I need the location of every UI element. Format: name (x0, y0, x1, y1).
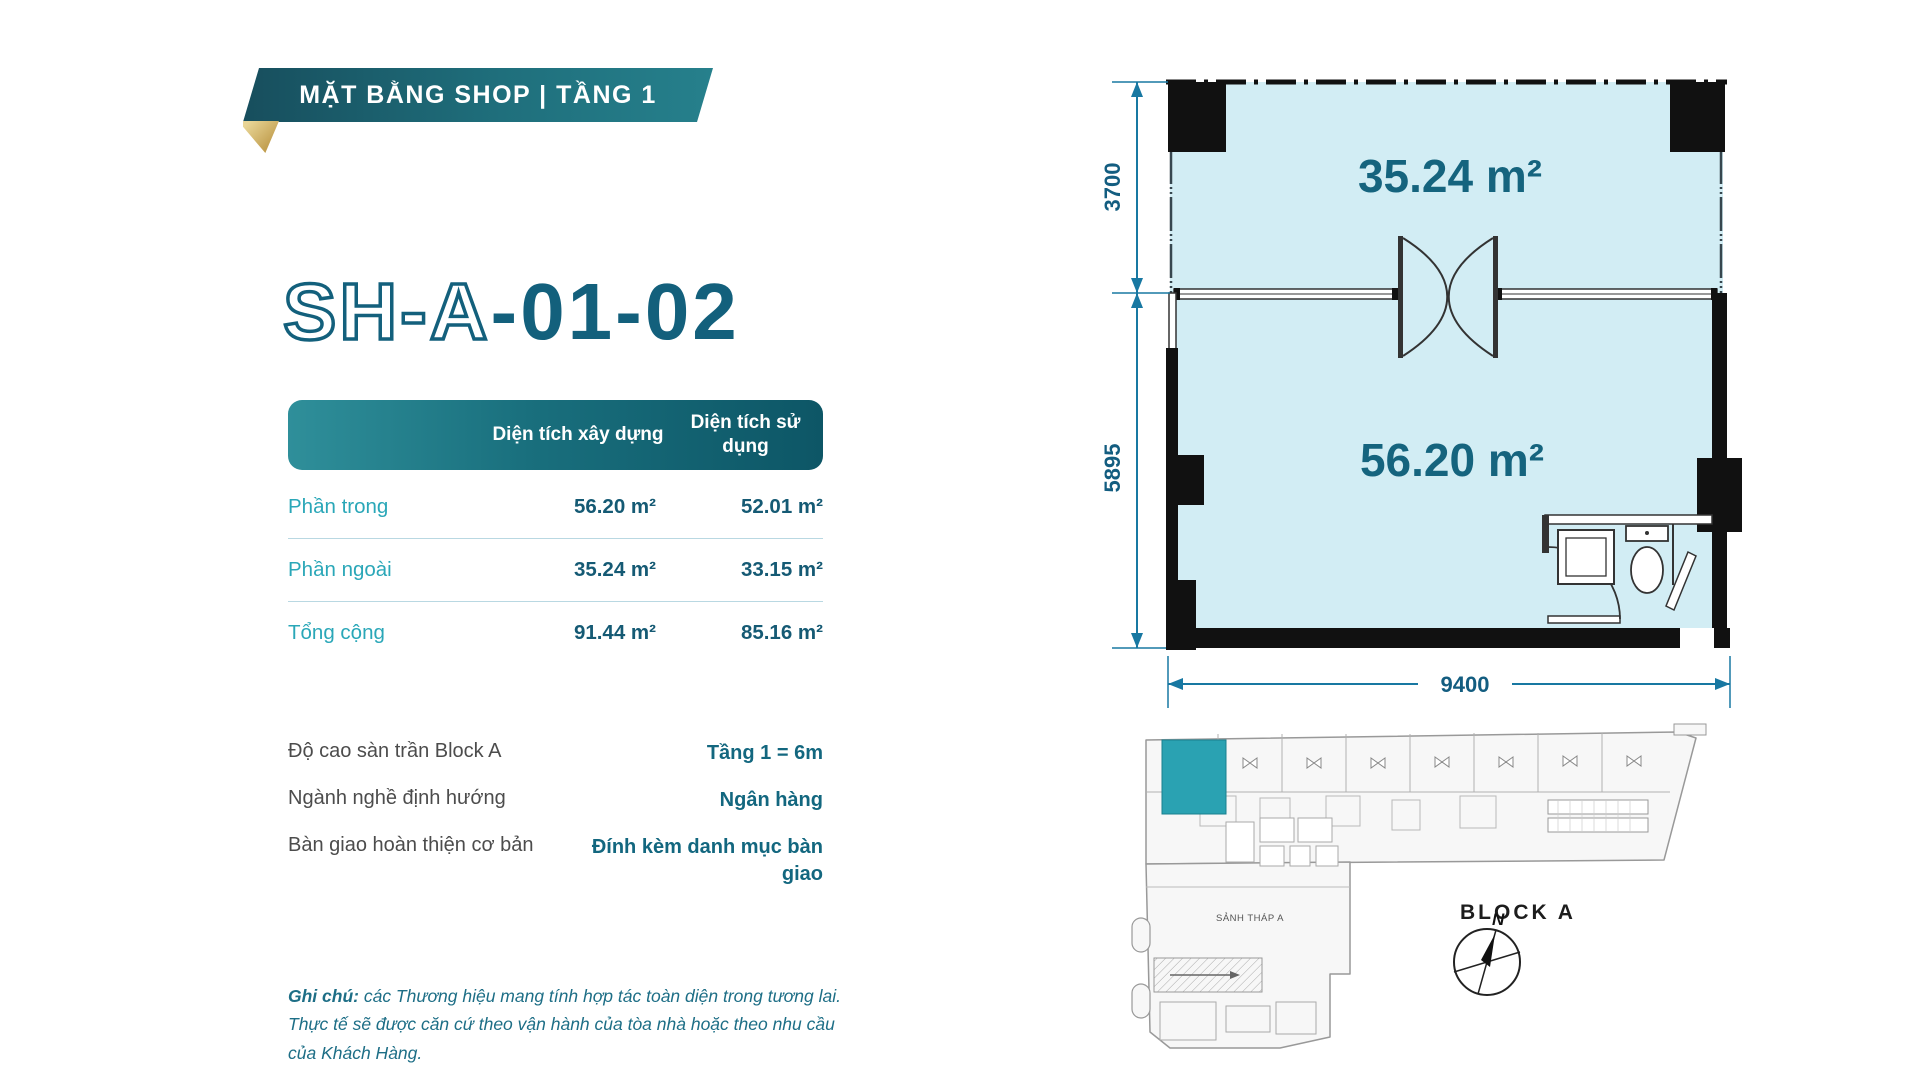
detail-row: Ngành nghề định hướng Ngân hàng (288, 787, 823, 814)
left-wing-outline (1146, 862, 1350, 1048)
banner-ribbon: MẶT BẰNG SHOP | TẦNG 1 (243, 68, 713, 122)
area-table-header: Diện tích xây dựng Diện tích sử dụng (288, 400, 823, 470)
note-prefix: Ghi chú: (288, 986, 359, 1006)
north-label: N (1492, 910, 1505, 929)
brochure-page: MẶT BẰNG SHOP | TẦNG 1 SH-A-01-02 Diện t… (0, 0, 1920, 1080)
dim-label-lower-height: 5895 (1100, 444, 1125, 493)
unit-code: SH-A-01-02 (283, 266, 740, 358)
elevator-core (1226, 818, 1338, 866)
facade-bump (1132, 984, 1150, 1018)
highlighted-unit (1162, 740, 1226, 814)
built-area-value: 91.44 m² (488, 621, 668, 645)
lobby-label: SẢNH THÁP A (1216, 912, 1284, 924)
detail-value: Ngân hàng (720, 787, 823, 814)
table-row: Phần trong 56.20 m² 52.01 m² (288, 476, 823, 538)
unit-code-solid: -01-02 (491, 267, 740, 356)
column (1168, 82, 1226, 152)
key-plan: SẢNH THÁP A BLOCK A N (1130, 722, 1730, 1057)
gold-fold-decoration (243, 121, 279, 153)
block-label: BLOCK A (1460, 901, 1576, 924)
usable-area-value: 85.16 m² (668, 621, 823, 645)
dim-label-width: 9400 (1441, 672, 1490, 697)
detail-label: Ngành nghề định hướng (288, 787, 506, 814)
column (1670, 82, 1725, 152)
row-label: Tổng cộng (288, 621, 488, 645)
dim-label-upper-height: 3700 (1100, 163, 1125, 212)
usable-area-value: 33.15 m² (668, 558, 823, 582)
detail-value: Tầng 1 = 6m (707, 740, 823, 767)
detail-label: Bàn giao hoàn thiện cơ bản (288, 834, 534, 888)
detail-row: Độ cao sàn trần Block A Tầng 1 = 6m (288, 740, 823, 767)
row-label: Phần ngoài (288, 558, 488, 582)
annex (1674, 724, 1706, 735)
lower-room-area-label: 56.20 m² (1360, 434, 1544, 486)
bathroom-door-leaf (1548, 616, 1620, 623)
area-table-body: Phần trong 56.20 m² 52.01 m² Phần ngoài … (288, 476, 823, 664)
built-area-value: 35.24 m² (488, 558, 668, 582)
banner: MẶT BẰNG SHOP | TẦNG 1 (243, 68, 713, 122)
built-area-value: 56.20 m² (488, 495, 668, 519)
area-table: Diện tích xây dựng Diện tích sử dụng Phầ… (288, 400, 823, 664)
floor-plan: 35.24 m² 56.20 m² 3700 5895 9400 (1090, 40, 1770, 730)
unit-code-outline: SH-A (283, 267, 491, 356)
detail-label: Độ cao sàn trần Block A (288, 740, 501, 767)
details-list: Độ cao sàn trần Block A Tầng 1 = 6m Ngàn… (288, 740, 823, 908)
detail-row: Bàn giao hoàn thiện cơ bản Đính kèm danh… (288, 834, 823, 888)
table-row: Tổng cộng 91.44 m² 85.16 m² (288, 601, 823, 664)
usable-area-value: 52.01 m² (668, 495, 823, 519)
upper-room-area-label: 35.24 m² (1358, 150, 1542, 202)
column-header-built-area: Diện tích xây dựng (488, 423, 668, 447)
page-title: MẶT BẰNG SHOP | TẦNG 1 (299, 81, 657, 110)
sink-icon (1558, 530, 1614, 584)
column-header-usable-area: Diện tích sử dụng (668, 411, 823, 459)
note: Ghi chú: các Thương hiệu mang tính hợp t… (288, 982, 856, 1067)
row-label: Phần trong (288, 495, 488, 519)
detail-value: Đính kèm danh mục bàn giao (563, 834, 823, 888)
note-text: các Thương hiệu mang tính hợp tác toàn d… (288, 986, 841, 1063)
table-row: Phần ngoài 35.24 m² 33.15 m² (288, 538, 823, 601)
facade-bump (1132, 918, 1150, 952)
